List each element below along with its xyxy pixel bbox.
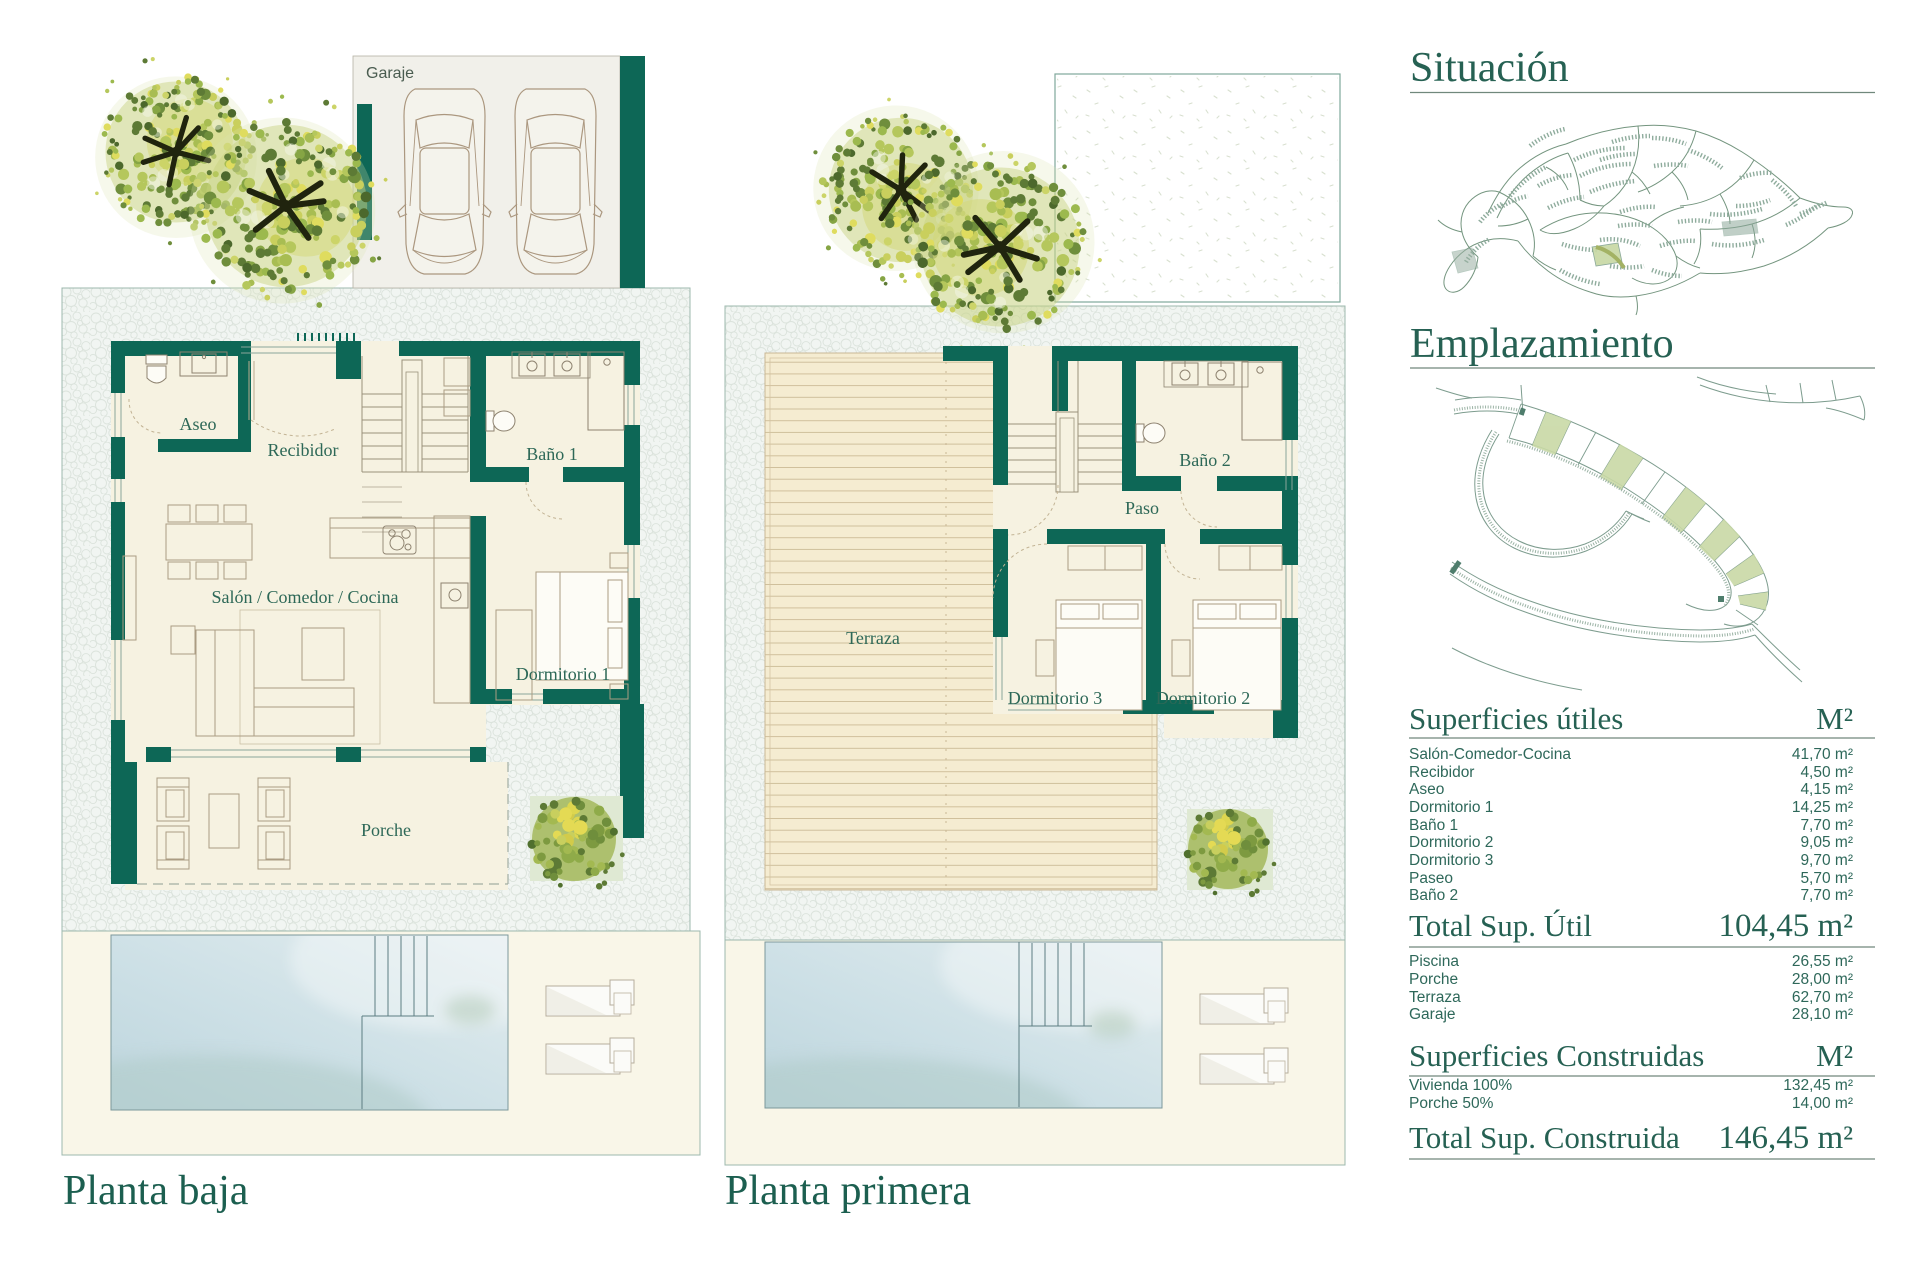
svg-text:M²: M²	[1816, 701, 1853, 736]
svg-text:28,00 m²: 28,00 m²	[1792, 971, 1853, 988]
svg-text:Porche 50%: Porche 50%	[1409, 1095, 1494, 1112]
svg-text:132,45 m²: 132,45 m²	[1783, 1077, 1853, 1094]
svg-text:Vivienda 100%: Vivienda 100%	[1409, 1077, 1512, 1094]
svg-text:Superficies útiles: Superficies útiles	[1409, 701, 1623, 736]
svg-text:146,45 m²: 146,45 m²	[1718, 1120, 1853, 1156]
svg-text:Planta baja: Planta baja	[63, 1168, 249, 1214]
svg-text:9,05 m²: 9,05 m²	[1800, 834, 1853, 851]
svg-text:Porche: Porche	[1409, 971, 1458, 988]
svg-text:4,50 m²: 4,50 m²	[1800, 764, 1853, 781]
svg-text:Dormitorio 2: Dormitorio 2	[1156, 688, 1251, 708]
svg-text:4,15 m²: 4,15 m²	[1800, 781, 1853, 798]
svg-text:Emplazamiento: Emplazamiento	[1410, 321, 1674, 367]
svg-text:Dormitorio 1: Dormitorio 1	[1409, 799, 1493, 816]
svg-text:Porche: Porche	[361, 820, 411, 840]
svg-text:Baño 1: Baño 1	[526, 444, 578, 464]
svg-text:Baño 2: Baño 2	[1179, 450, 1231, 470]
svg-text:Baño 1: Baño 1	[1409, 817, 1458, 834]
svg-text:26,55 m²: 26,55 m²	[1792, 953, 1853, 970]
svg-text:Baño 2: Baño 2	[1409, 887, 1458, 904]
svg-text:Aseo: Aseo	[180, 414, 217, 434]
svg-text:7,70 m²: 7,70 m²	[1800, 887, 1853, 904]
svg-text:Dormitorio 2: Dormitorio 2	[1409, 834, 1493, 851]
svg-text:Aseo: Aseo	[1409, 781, 1444, 798]
svg-text:Dormitorio 3: Dormitorio 3	[1008, 688, 1103, 708]
svg-text:Salón-Comedor-Cocina: Salón-Comedor-Cocina	[1409, 746, 1571, 763]
svg-text:9,70 m²: 9,70 m²	[1800, 852, 1853, 869]
svg-text:7,70 m²: 7,70 m²	[1800, 817, 1853, 834]
svg-text:Total Sup. Útil: Total Sup. Útil	[1409, 908, 1592, 943]
svg-text:Planta primera: Planta primera	[725, 1168, 971, 1214]
svg-text:41,70 m²: 41,70 m²	[1792, 746, 1853, 763]
svg-text:14,25 m²: 14,25 m²	[1792, 799, 1853, 816]
svg-text:Situación: Situación	[1410, 45, 1569, 91]
svg-text:Garaje: Garaje	[1409, 1006, 1456, 1023]
svg-text:Total Sup. Construida: Total Sup. Construida	[1409, 1120, 1680, 1155]
svg-text:Recibidor: Recibidor	[268, 440, 339, 460]
svg-text:Terraza: Terraza	[846, 628, 900, 648]
svg-text:Garaje: Garaje	[366, 65, 414, 82]
svg-text:Piscina: Piscina	[1409, 953, 1459, 970]
svg-text:104,45 m²: 104,45 m²	[1718, 908, 1853, 944]
svg-text:Salón / Comedor / Cocina: Salón / Comedor / Cocina	[212, 587, 399, 607]
svg-text:Superficies Construidas: Superficies Construidas	[1409, 1038, 1704, 1073]
svg-text:Dormitorio 3: Dormitorio 3	[1409, 852, 1493, 869]
svg-text:14,00 m²: 14,00 m²	[1792, 1095, 1853, 1112]
svg-text:5,70 m²: 5,70 m²	[1800, 870, 1853, 887]
svg-text:62,70 m²: 62,70 m²	[1792, 989, 1853, 1006]
svg-text:Dormitorio 1: Dormitorio 1	[516, 664, 611, 684]
svg-text:Paso: Paso	[1125, 498, 1159, 518]
svg-text:28,10 m²: 28,10 m²	[1792, 1006, 1853, 1023]
svg-text:Recibidor: Recibidor	[1409, 764, 1474, 781]
svg-text:Terraza: Terraza	[1409, 989, 1461, 1006]
svg-text:M²: M²	[1816, 1038, 1853, 1073]
svg-text:Paseo: Paseo	[1409, 870, 1453, 887]
